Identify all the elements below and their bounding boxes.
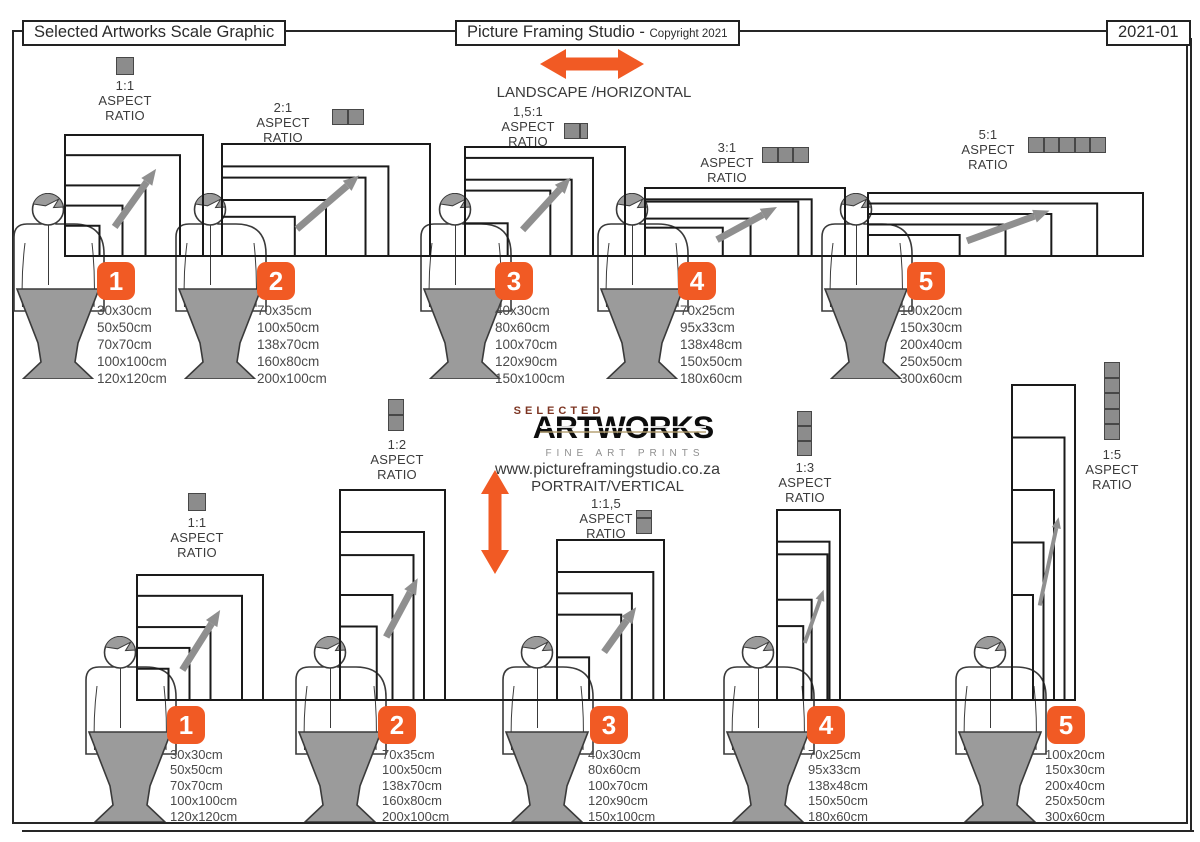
size-list: 70x35cm100x50cm 138x70cm160x80cm 200x100… [257, 302, 327, 387]
ratio-icon [188, 493, 206, 511]
group-number-badge: 1 [97, 262, 135, 300]
logo-stencil-line [540, 426, 706, 428]
ratio-value: 3:1 [679, 140, 775, 155]
ratio-value: 2:1 [235, 100, 331, 115]
page-border-shadow-bottom [22, 830, 1194, 832]
person-figure [170, 193, 270, 384]
aspect-ratio-label: 1,5:1 ASPECT RATIO [480, 104, 576, 149]
size-list: 70x25cm95x33cm 138x48cm150x50cm 180x60cm [808, 747, 868, 824]
page-title: Selected Artworks Scale Graphic [22, 20, 286, 46]
aspect-word: ASPECT [1064, 462, 1160, 477]
copyright-text: Copyright 2021 [650, 28, 728, 40]
doc-number: 2021-01 [1106, 20, 1191, 46]
group-number-badge: 2 [378, 706, 416, 744]
ratio-word: RATIO [235, 130, 331, 145]
aspect-ratio-label: 1:5 ASPECT RATIO [1064, 447, 1160, 492]
ratio-word: RATIO [757, 490, 853, 505]
aspect-word: ASPECT [77, 93, 173, 108]
ratio-icon [1104, 362, 1120, 440]
person-figure [80, 636, 180, 827]
horizontal-double-arrow-icon [540, 47, 644, 81]
aspect-word: ASPECT [480, 119, 576, 134]
size-list: 100x20cm150x30cm 200x40cm250x50cm 300x60… [1045, 747, 1105, 824]
person-figure [592, 193, 692, 384]
website-url: www.pictureframingstudio.co.za [480, 461, 735, 479]
group-number-badge: 4 [807, 706, 845, 744]
group-number-badge: 3 [590, 706, 628, 744]
aspect-ratio-label: 1:1 ASPECT RATIO [149, 515, 245, 560]
size-list: 70x35cm100x50cm 138x70cm160x80cm 200x100… [382, 747, 449, 824]
size-list: 100x20cm150x30cm 200x40cm250x50cm 300x60… [900, 302, 962, 387]
aspect-word: ASPECT [149, 530, 245, 545]
studio-title-box: Picture Framing Studio - Copyright 2021 [455, 20, 740, 46]
ratio-value: 1:1,5 [558, 496, 654, 511]
ratio-value: 1:2 [349, 437, 445, 452]
aspect-word: ASPECT [235, 115, 331, 130]
ratio-icon [116, 57, 134, 75]
ratio-word: RATIO [940, 157, 1036, 172]
vertical-double-arrow-icon [480, 470, 510, 574]
ratio-value: 1,5:1 [480, 104, 576, 119]
ratio-word: RATIO [149, 545, 245, 560]
aspect-ratio-label: 1:2 ASPECT RATIO [349, 437, 445, 482]
ratio-word: RATIO [480, 134, 576, 149]
ratio-icon [388, 399, 404, 431]
size-list: 40x30cm80x60cm 100x70cm120x90cm 150x100c… [588, 747, 655, 824]
logo-streak-line [540, 431, 706, 433]
ratio-icon [636, 510, 652, 534]
group-number-badge: 5 [907, 262, 945, 300]
studio-title: Picture Framing Studio - [467, 23, 645, 41]
logo-subtitle: FINE ART PRINTS [535, 448, 715, 459]
aspect-word: ASPECT [940, 142, 1036, 157]
person-figure [718, 636, 818, 827]
portrait-section-label: PORTRAIT/VERTICAL [490, 478, 725, 495]
ratio-word: RATIO [679, 170, 775, 185]
person-figure [290, 636, 390, 827]
page-border-shadow-right [1190, 38, 1192, 832]
aspect-ratio-label: 1:3 ASPECT RATIO [757, 460, 853, 505]
size-list: 70x25cm95x33cm 138x48cm150x50cm 180x60cm [680, 302, 742, 387]
ratio-icon [332, 109, 364, 125]
ratio-word: RATIO [1064, 477, 1160, 492]
landscape-section-label: LANDSCAPE /HORIZONTAL [494, 84, 694, 101]
ratio-icon [762, 147, 809, 163]
ratio-word: RATIO [77, 108, 173, 123]
ratio-value: 1:3 [757, 460, 853, 475]
size-list: 30x30cm50x50cm 70x70cm100x100cm 120x120c… [97, 302, 167, 387]
ratio-icon [1028, 137, 1106, 153]
scale-graphic-page: { "header": { "left_title": "Selected Ar… [0, 0, 1200, 842]
person-figure [497, 636, 597, 827]
aspect-ratio-label: 1:1 ASPECT RATIO [77, 78, 173, 123]
size-list: 30x30cm50x50cm 70x70cm100x100cm 120x120c… [170, 747, 237, 824]
ratio-word: RATIO [349, 467, 445, 482]
group-number-badge: 3 [495, 262, 533, 300]
ratio-icon [797, 411, 812, 456]
group-number-badge: 4 [678, 262, 716, 300]
person-figure [950, 636, 1050, 827]
ratio-value: 1:1 [149, 515, 245, 530]
group-number-badge: 5 [1047, 706, 1085, 744]
aspect-ratio-label: 3:1 ASPECT RATIO [679, 140, 775, 185]
ratio-icon [564, 123, 588, 139]
group-number-badge: 1 [167, 706, 205, 744]
aspect-ratio-label: 5:1 ASPECT RATIO [940, 127, 1036, 172]
aspect-word: ASPECT [349, 452, 445, 467]
aspect-word: ASPECT [679, 155, 775, 170]
person-figure [8, 193, 108, 384]
ratio-value: 1:5 [1064, 447, 1160, 462]
aspect-word: ASPECT [757, 475, 853, 490]
group-number-badge: 2 [257, 262, 295, 300]
ratio-value: 5:1 [940, 127, 1036, 142]
size-list: 40x30cm80x60cm 100x70cm120x90cm 150x100c… [495, 302, 565, 387]
ratio-value: 1:1 [77, 78, 173, 93]
aspect-ratio-label: 2:1 ASPECT RATIO [235, 100, 331, 145]
